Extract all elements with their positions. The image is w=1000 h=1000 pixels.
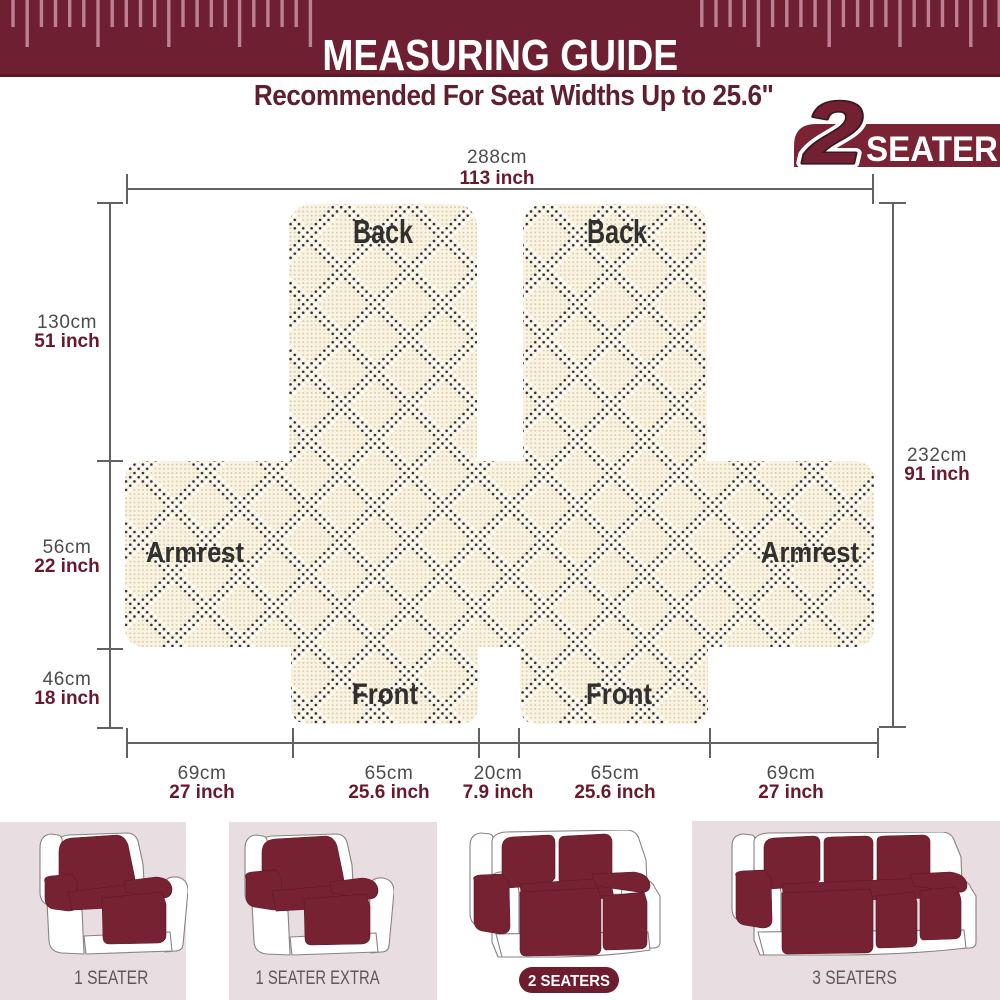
svg-text:130cm: 130cm [37, 312, 97, 333]
svg-text:51 inch: 51 inch [34, 331, 99, 352]
svg-text:232cm: 232cm [907, 445, 967, 466]
svg-text:113 inch: 113 inch [460, 168, 535, 189]
svg-text:Back: Back [353, 213, 413, 250]
svg-text:7.9 inch: 7.9 inch [463, 782, 534, 803]
svg-text:18 inch: 18 inch [34, 688, 99, 709]
svg-text:25.6 inch: 25.6 inch [348, 782, 429, 803]
svg-text:288cm: 288cm [467, 147, 527, 168]
svg-text:25.6 inch: 25.6 inch [574, 782, 655, 803]
svg-text:69cm: 69cm [178, 763, 227, 784]
svg-text:91 inch: 91 inch [904, 464, 969, 485]
svg-text:Front: Front [586, 678, 652, 711]
svg-text:2 SEATERS: 2 SEATERS [528, 973, 610, 990]
svg-text:56cm: 56cm [43, 537, 92, 558]
svg-text:Front: Front [352, 678, 418, 711]
svg-text:46cm: 46cm [43, 669, 92, 690]
svg-text:69cm: 69cm [767, 763, 816, 784]
svg-text:65cm: 65cm [591, 763, 640, 784]
svg-text:Armrest: Armrest [146, 537, 244, 569]
svg-text:Armrest: Armrest [761, 537, 859, 569]
svg-text:22 inch: 22 inch [34, 556, 99, 577]
svg-text:Back: Back [587, 213, 647, 250]
svg-text:27 inch: 27 inch [169, 782, 234, 803]
svg-text:20cm: 20cm [474, 763, 523, 784]
svg-text:65cm: 65cm [365, 763, 414, 784]
svg-text:27 inch: 27 inch [758, 782, 823, 803]
